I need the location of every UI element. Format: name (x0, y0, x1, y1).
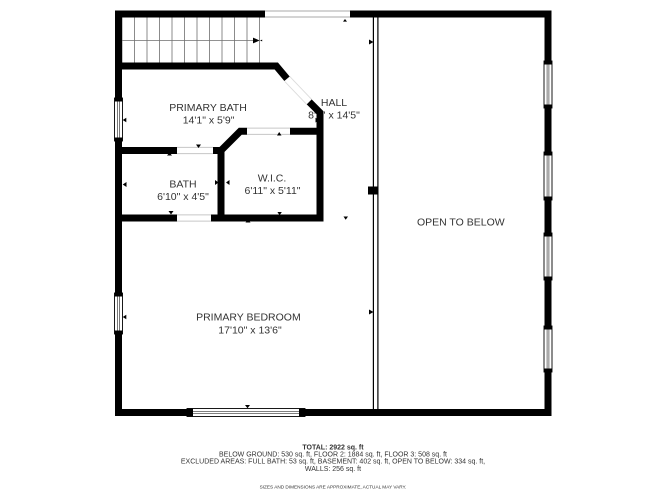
svg-text:SIZES AND DIMENSIONS ARE APPRO: SIZES AND DIMENSIONS ARE APPROXIMATE, AC… (260, 485, 407, 490)
svg-text:OPEN TO BELOW: OPEN TO BELOW (417, 217, 505, 229)
svg-text:14'1" x 5'9": 14'1" x 5'9" (183, 115, 235, 127)
svg-text:BATH: BATH (169, 179, 196, 191)
svg-text:HALL: HALL (321, 97, 347, 109)
svg-text:6'10" x 4'5": 6'10" x 4'5" (157, 191, 209, 203)
svg-text:17'10" x 13'6": 17'10" x 13'6" (218, 325, 282, 337)
svg-text:W.I.C.: W.I.C. (258, 173, 287, 185)
svg-text:PRIMARY BATH: PRIMARY BATH (169, 102, 247, 114)
svg-text:PRIMARY BEDROOM: PRIMARY BEDROOM (196, 312, 301, 324)
svg-text:TOTAL: 2922 sq. ft: TOTAL: 2922 sq. ft (302, 444, 364, 451)
svg-text:WALLS: 256 sq. ft: WALLS: 256 sq. ft (305, 466, 361, 473)
svg-text:6'11" x 5'11": 6'11" x 5'11" (244, 185, 300, 197)
svg-text:EXCLUDED AREAS: FULL BATH: 53: EXCLUDED AREAS: FULL BATH: 53 sq. ft, BA… (181, 459, 485, 466)
svg-text:BELOW GROUND: 530 sq. ft, FLOO: BELOW GROUND: 530 sq. ft, FLOOR 2: 1884 … (219, 452, 447, 459)
